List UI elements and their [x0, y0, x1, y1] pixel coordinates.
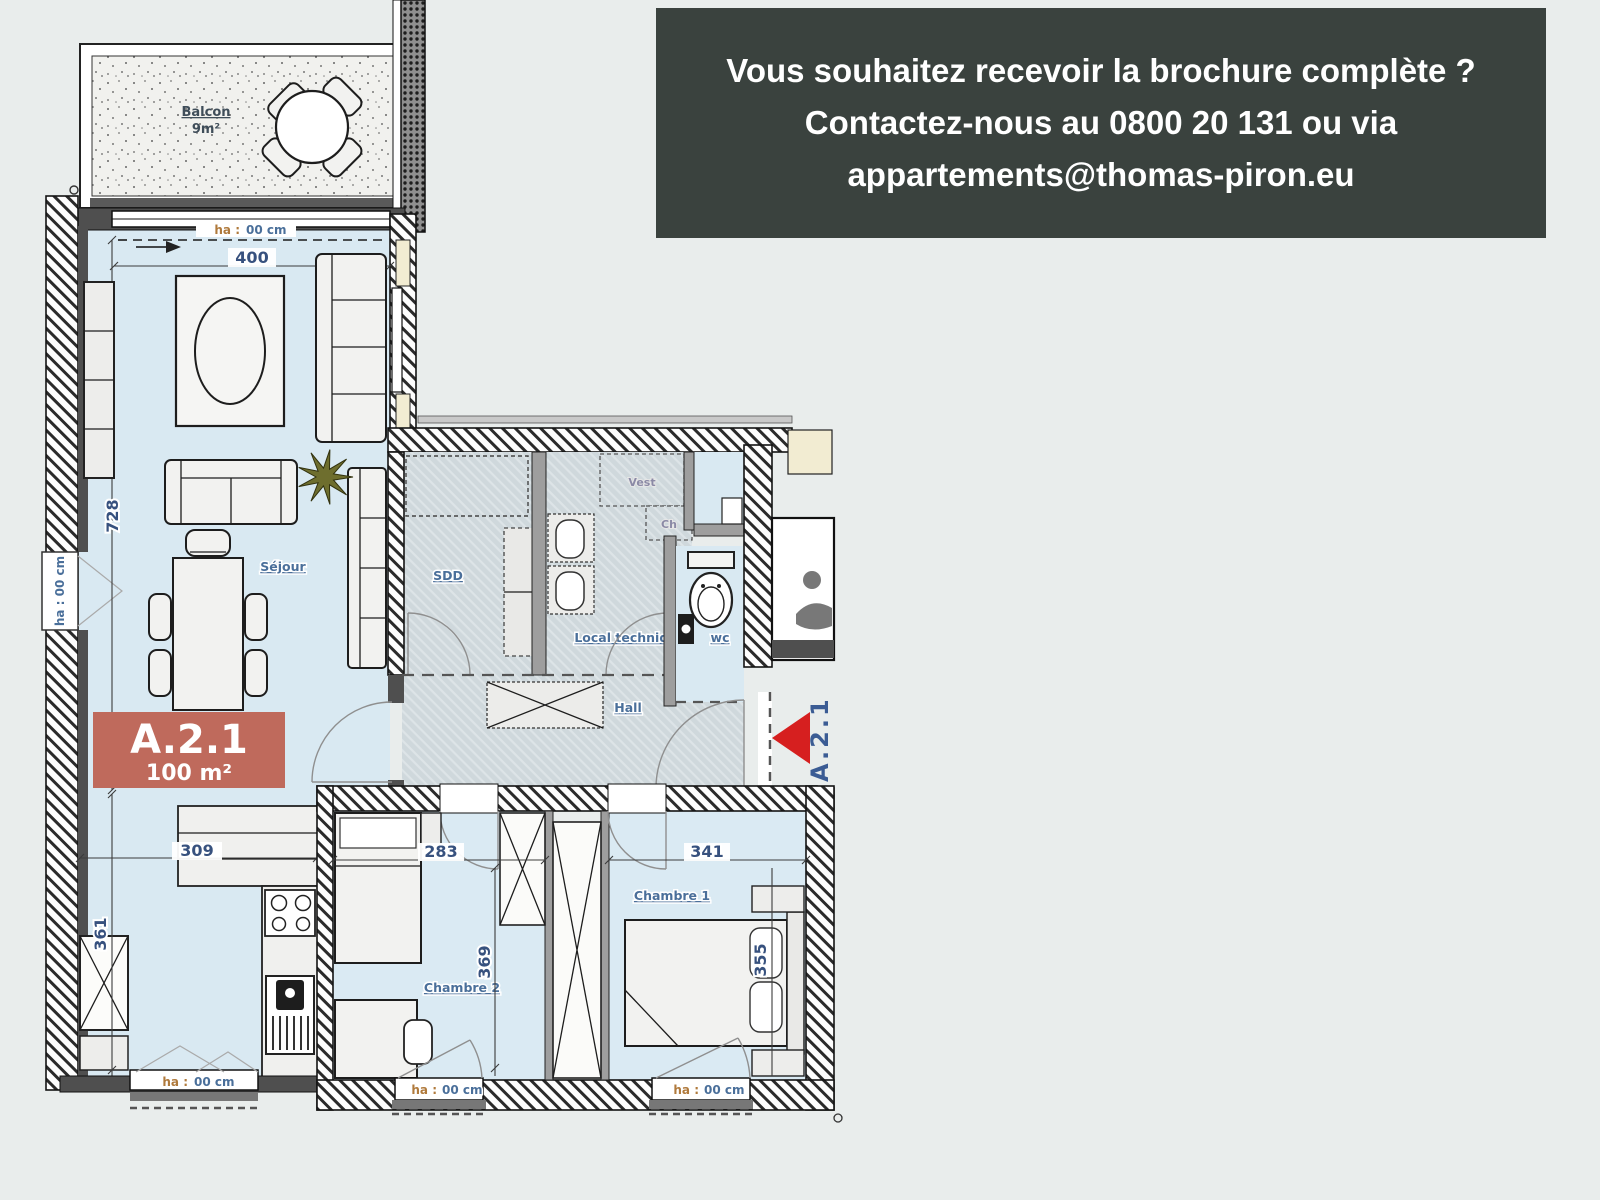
hall-closet [487, 682, 603, 728]
washing-machine-icon [548, 514, 594, 562]
svg-text:369: 369 [475, 945, 494, 978]
toilet-icon [688, 552, 734, 627]
bedroom2-window-label-prefix: ha : [411, 1083, 437, 1097]
balcony-railing [90, 198, 405, 207]
entrance: A.2.1 [744, 445, 834, 812]
bedrooms: Chambre 2 283 369 [317, 784, 842, 1122]
kitchen-closet [80, 936, 128, 1070]
bedroom2-label: Chambre 2 [424, 980, 500, 995]
kitchen-window-label-prefix: ha : [162, 1075, 188, 1089]
nightstand-bottom [752, 1050, 804, 1076]
bench-sofa [348, 468, 386, 668]
svg-text:361: 361 [91, 917, 110, 950]
sofa [316, 254, 386, 442]
svg-text:355: 355 [751, 943, 770, 976]
elevator [772, 518, 834, 660]
svg-text:309: 309 [180, 841, 213, 860]
contact-banner: Vous souhaitez recevoir la brochure comp… [656, 8, 1546, 238]
shower-icon [406, 456, 528, 516]
left-exterior-wall [46, 196, 78, 1090]
bedroom1-window-label-value: 00 cm [704, 1083, 745, 1097]
nightstand-top [752, 886, 804, 912]
wc-label: wc [711, 630, 730, 645]
svg-text:728: 728 [103, 499, 122, 532]
left-window-label: ha : 00 cm [53, 556, 67, 626]
closet-label: Vest [628, 476, 655, 489]
balcony: Balcon 9m² [70, 44, 415, 208]
top-window-label-prefix: ha : [214, 223, 240, 237]
hall-label: Hall [614, 700, 641, 715]
rug [176, 276, 284, 426]
bedroom2-desk [335, 1000, 432, 1078]
boiler-label: Ch [661, 518, 677, 531]
entrance-arrow-icon [772, 712, 810, 764]
svg-text:400: 400 [235, 248, 268, 267]
kitchen-window-label-value: 00 cm [194, 1075, 235, 1089]
banner-line-2: Contactez-nous au 0800 20 131 ou via [805, 97, 1397, 149]
banner-line-3: appartements@thomas-piron.eu [847, 149, 1354, 201]
banner-line-1: Vous souhaitez recevoir la brochure comp… [726, 45, 1475, 97]
balcony-area: 9m² [192, 122, 220, 137]
bookshelf [84, 282, 114, 478]
living-label: Séjour [260, 559, 306, 574]
living-right-wall [390, 214, 416, 452]
top-window-label-value: 00 cm [246, 223, 287, 237]
handwash-basin-icon [678, 614, 694, 644]
balcony-table [276, 91, 348, 163]
shower-room-label: SDD [433, 568, 463, 583]
unit-code: A.2.1 [130, 717, 248, 763]
tall-wardrobe [553, 822, 601, 1078]
svg-text:283: 283 [424, 842, 457, 861]
bedroom2-window-label-value: 00 cm [442, 1083, 483, 1097]
bedroom1-window-label-prefix: ha : [673, 1083, 699, 1097]
dryer-icon [548, 566, 594, 614]
sink-icon [266, 976, 314, 1054]
stove-icon [265, 890, 315, 936]
bedroom1-label: Chambre 1 [634, 888, 710, 903]
balcony-label: Balcon [181, 105, 230, 120]
party-wall [393, 0, 425, 232]
bedroom1-bed [625, 912, 804, 1054]
unit-badge: A.2.1 100 m² [93, 712, 285, 788]
unit-area: 100 m² [146, 761, 232, 786]
loveseat [165, 460, 297, 524]
brochure-page: Balcon 9m² ha : 00 cm [0, 0, 1600, 1200]
entrance-unit-label: A.2.1 [806, 696, 834, 782]
svg-text:341: 341 [690, 842, 723, 861]
wardrobe-closet [500, 813, 545, 925]
